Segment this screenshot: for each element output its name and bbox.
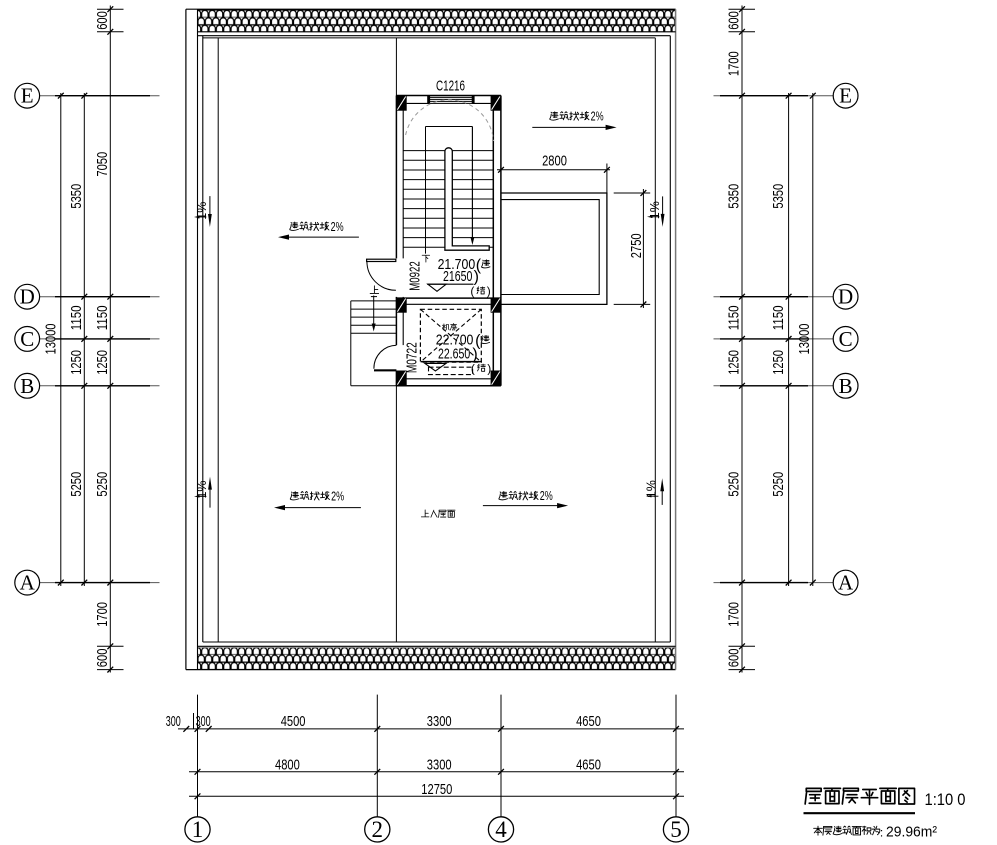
svg-text:4650: 4650 (576, 756, 601, 773)
svg-text:C: C (839, 327, 853, 351)
svg-text:300: 300 (166, 713, 181, 730)
svg-text:D: D (20, 285, 35, 309)
svg-text:A: A (20, 571, 36, 595)
svg-text:22.650: 22.650 (438, 345, 470, 362)
svg-text:1:10 0: 1:10 0 (925, 790, 966, 809)
svg-text:2%: 2% (331, 220, 344, 234)
svg-text:M0922: M0922 (407, 261, 424, 291)
svg-text:1150: 1150 (94, 305, 111, 330)
svg-text:600: 600 (725, 649, 742, 668)
svg-text:13000: 13000 (796, 324, 813, 355)
svg-text:E: E (839, 84, 852, 108)
svg-text:1: 1 (192, 817, 204, 842)
svg-text:C: C (20, 327, 34, 351)
svg-text:B: B (20, 374, 34, 398)
svg-text:29.96m²: 29.96m² (886, 824, 937, 841)
svg-text:D: D (838, 285, 853, 309)
svg-text:21650: 21650 (443, 268, 472, 285)
svg-text:4: 4 (495, 817, 507, 842)
svg-text:2%: 2% (331, 489, 344, 503)
svg-text:13000: 13000 (43, 324, 60, 355)
svg-text:B: B (839, 374, 853, 398)
svg-text:1150: 1150 (68, 305, 85, 330)
svg-text:2%: 2% (540, 489, 553, 503)
svg-text:5250: 5250 (94, 472, 111, 497)
svg-text:3300: 3300 (427, 756, 452, 773)
svg-text:300: 300 (196, 713, 211, 730)
svg-text:1150: 1150 (770, 305, 787, 330)
svg-text:5250: 5250 (770, 472, 787, 497)
svg-text:2800: 2800 (542, 152, 567, 169)
svg-text:2%: 2% (591, 110, 604, 124)
svg-text:600: 600 (94, 11, 111, 30)
svg-text:2: 2 (372, 817, 384, 842)
svg-text:): ) (487, 284, 491, 298)
svg-text::: : (880, 825, 883, 839)
svg-text:4650: 4650 (576, 713, 601, 730)
svg-text:): ) (474, 269, 479, 286)
svg-text:1250: 1250 (770, 350, 787, 375)
svg-text:1250: 1250 (68, 350, 85, 375)
svg-text:1250: 1250 (94, 350, 111, 375)
svg-text:5350: 5350 (68, 184, 85, 209)
svg-text:12750: 12750 (421, 781, 452, 798)
svg-text:): ) (487, 361, 491, 375)
svg-text:M0722: M0722 (404, 342, 421, 373)
svg-text:5: 5 (670, 817, 682, 842)
svg-text:5350: 5350 (770, 184, 787, 209)
svg-text:1700: 1700 (94, 602, 111, 627)
svg-text:E: E (21, 84, 34, 108)
svg-text:5350: 5350 (725, 184, 742, 209)
svg-text:2750: 2750 (628, 233, 645, 258)
svg-text:1250: 1250 (725, 350, 742, 375)
svg-text:600: 600 (725, 11, 742, 30)
svg-text:600: 600 (94, 649, 111, 668)
svg-text:(: ( (471, 361, 475, 375)
svg-text:1150: 1150 (725, 305, 742, 330)
svg-text:A: A (838, 571, 854, 595)
svg-text:5250: 5250 (68, 472, 85, 497)
svg-text:7050: 7050 (94, 152, 111, 177)
svg-text:(: ( (470, 284, 474, 298)
svg-text:4800: 4800 (275, 756, 300, 773)
svg-text:5250: 5250 (725, 472, 742, 497)
svg-text:1700: 1700 (725, 602, 742, 627)
svg-text:1700: 1700 (725, 51, 742, 76)
svg-text:4500: 4500 (281, 713, 306, 730)
svg-text:3300: 3300 (427, 713, 452, 730)
svg-text:C1216: C1216 (436, 78, 465, 95)
